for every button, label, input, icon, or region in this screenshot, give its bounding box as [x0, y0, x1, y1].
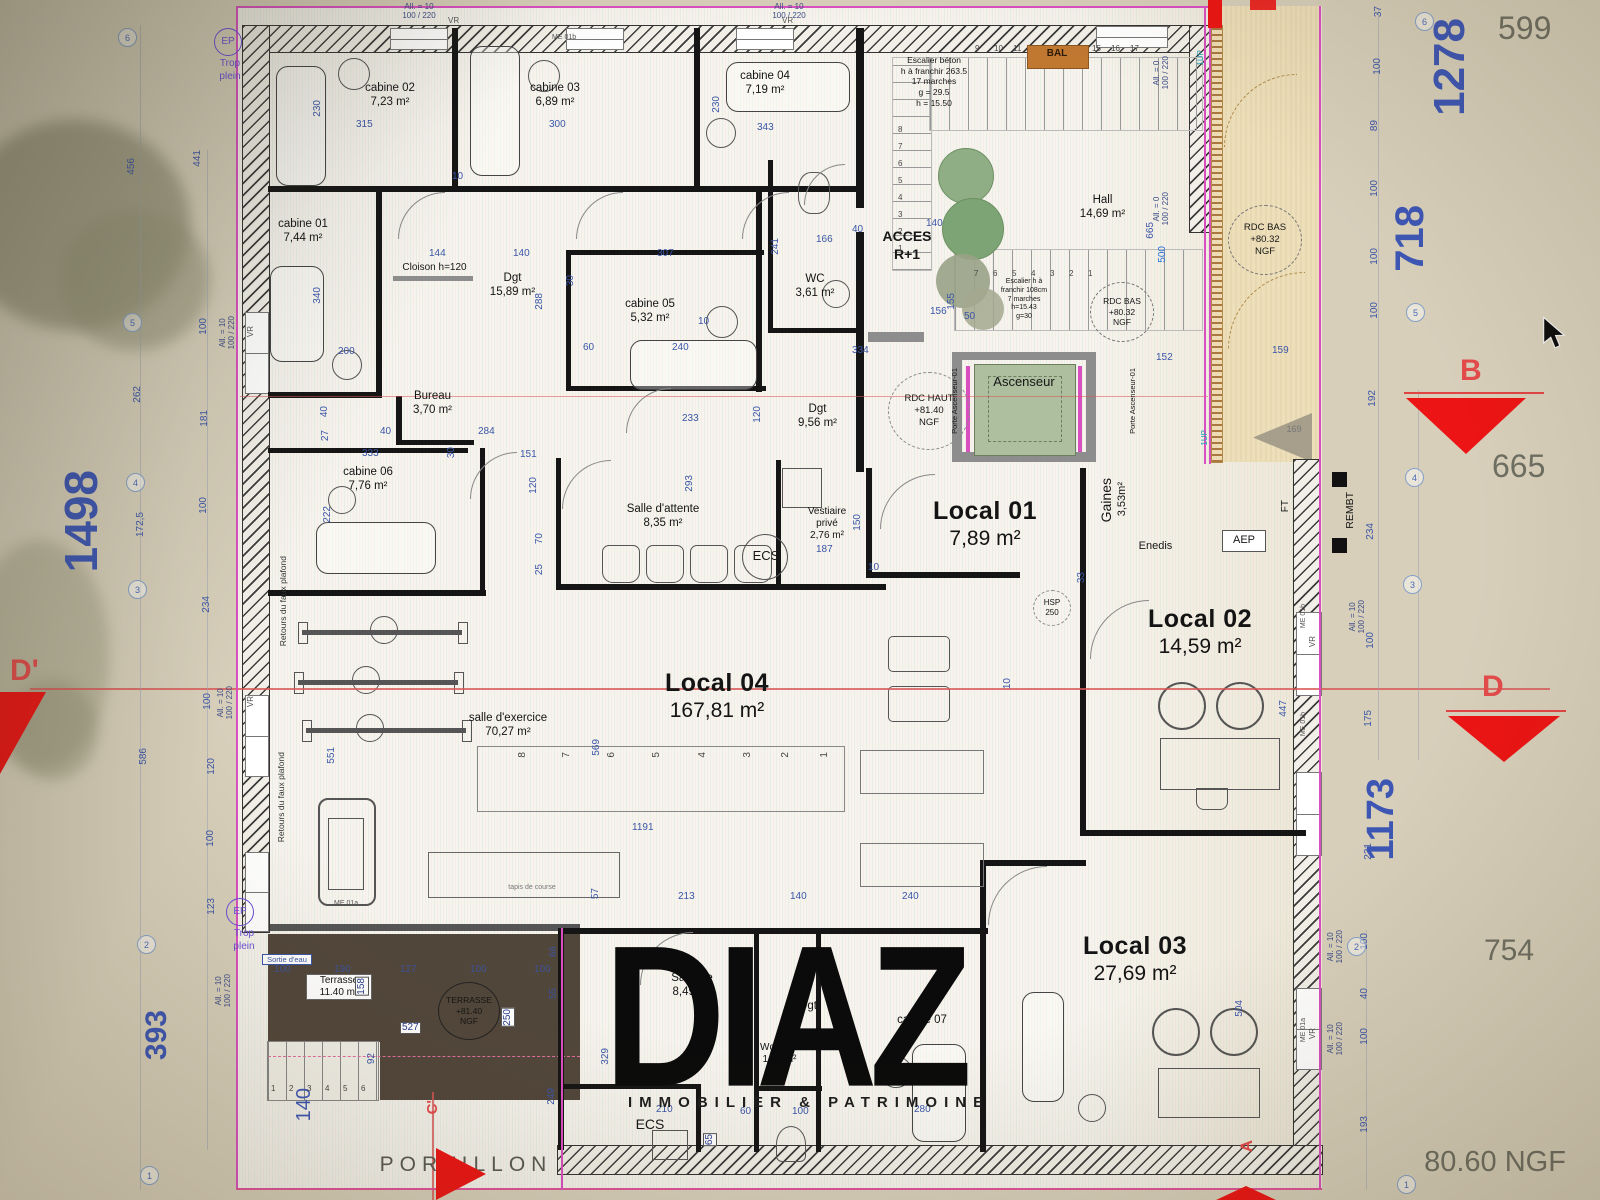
room-name: cabine 05	[600, 298, 700, 312]
step-number: 3	[307, 1085, 311, 1093]
mat-number: 1	[820, 752, 830, 758]
dim-label: 25	[535, 564, 545, 575]
marker-d-line	[1446, 710, 1566, 712]
room-label-cabine02: cabine 027,23 m²	[340, 82, 440, 110]
armchair	[1152, 1008, 1200, 1056]
room-area: 7,23 m²	[340, 96, 440, 110]
vr-label: VR	[1308, 1028, 1317, 1039]
wall	[980, 860, 1086, 866]
stair-number: 3	[898, 211, 902, 219]
wall	[268, 590, 486, 596]
stair-number: 10	[994, 45, 1003, 53]
wall-note: All. = 10 100 / 220	[214, 974, 232, 1007]
big-dim-754: 754	[1484, 936, 1534, 966]
room-area: 14,69 m²	[1055, 208, 1150, 222]
me-label: ME 01b	[1300, 712, 1308, 736]
room-label-dgt2: Dgt9,56 m²	[770, 403, 865, 431]
stair-number: 3	[1050, 270, 1054, 278]
dim-label: 181	[200, 410, 210, 427]
treadmill-belt	[328, 818, 364, 890]
sheet-border	[1209, 6, 1211, 464]
stool	[706, 118, 736, 148]
stair-note-small: Escalier h à franchir 108cm 7 marches h=…	[980, 278, 1068, 322]
dim-label: 155	[947, 293, 957, 310]
ecs-unit	[652, 1130, 688, 1160]
section-line	[240, 396, 1208, 397]
dim-label: 120	[207, 758, 217, 775]
dim-label: 340	[313, 287, 323, 304]
dim-label: 156	[930, 307, 947, 317]
cloison-note: Cloison h=120	[392, 262, 477, 275]
wall	[868, 332, 924, 342]
wall-note: All. = 10 100 / 220	[388, 2, 450, 20]
wall-left	[243, 26, 269, 932]
dim-label: 527	[400, 1022, 421, 1034]
massage-table	[470, 46, 520, 176]
dim-label: 158	[355, 977, 369, 996]
dim-label: 40	[380, 427, 391, 437]
marker-b: B	[1460, 352, 1482, 390]
waiting-chair	[646, 545, 684, 583]
room-label-gaines: Gaines	[1098, 478, 1116, 522]
stair-number: 7	[898, 143, 902, 151]
big-dim-599: 599	[1498, 12, 1551, 44]
marker-d-prime: D'	[10, 652, 39, 690]
me-label: ME 01b	[552, 34, 576, 42]
step-number: 5	[343, 1085, 347, 1093]
dim-label: 240	[902, 892, 919, 902]
gym-plate	[302, 720, 312, 742]
dim-label: 27	[321, 430, 331, 441]
dim-label: 300	[549, 120, 566, 130]
dim-label: 190	[334, 965, 351, 975]
elevator-frame	[952, 352, 1096, 360]
vr-label: VR	[246, 326, 255, 337]
stool	[706, 306, 738, 338]
dim-label: 92	[367, 1053, 377, 1064]
gym-plate	[458, 622, 468, 644]
dim-label: 100	[1370, 248, 1380, 265]
dim-label: 187	[816, 545, 833, 555]
faux-plafond-note: Retours du faux plafond	[278, 556, 289, 646]
dim-label: 30	[566, 275, 576, 286]
big-dim-1498: 1498	[58, 470, 104, 572]
dim-label: 249	[547, 1088, 557, 1105]
room-name: Local 03	[1050, 931, 1220, 961]
dim-label: 40	[852, 225, 863, 235]
dim-label: 127	[400, 965, 417, 975]
room-name: cabine 03	[505, 82, 605, 96]
dim-label: 1191	[632, 823, 654, 833]
wall	[1080, 576, 1086, 834]
room-label-local01: Local 017,89 m²	[900, 496, 1070, 551]
room-area: 15,89 m²	[465, 286, 560, 300]
room-name: cabine 01	[253, 218, 353, 232]
room-area: 9,56 m²	[770, 417, 865, 431]
dim-label: 166	[816, 235, 833, 245]
room-name: Local 04	[612, 668, 822, 698]
room-area: 5,32 m²	[600, 312, 700, 326]
plant	[938, 148, 994, 204]
dim-label: 241	[771, 238, 781, 255]
section-mark	[1250, 0, 1276, 10]
dim-label: 57	[591, 888, 601, 899]
big-dim-665: 665	[1492, 450, 1545, 482]
dim-label: 60	[583, 343, 594, 353]
dim-label: 55	[549, 988, 559, 999]
stair-note-main: Escalier béton h à franchir 263.5 17 mar…	[878, 55, 990, 108]
massage-table	[630, 340, 757, 390]
wall-note: All. = 10 100 / 220	[1326, 1022, 1344, 1055]
dim-label: 343	[757, 123, 774, 133]
room-area: 7,44 m²	[253, 232, 353, 246]
dim-label: 504	[1235, 1000, 1245, 1017]
vr-label: VR	[782, 16, 793, 25]
dim-label: 200	[338, 347, 355, 357]
corridor-wall	[1212, 26, 1222, 462]
waiting-chair	[690, 545, 728, 583]
room-area: 7,89 m²	[900, 526, 1070, 551]
shower	[782, 468, 822, 508]
floor-plan-photo: cabine 027,23 m² cabine 036,89 m² cabine…	[0, 0, 1600, 1200]
mat-number: 2	[781, 752, 791, 758]
plant	[942, 198, 1004, 260]
dim-label: 50	[964, 312, 975, 322]
gym-plate	[298, 622, 308, 644]
dim-label: 40	[1360, 988, 1370, 999]
mat-number: 4	[698, 752, 708, 758]
rembt-square	[1332, 472, 1347, 487]
stair-number: 17	[1130, 45, 1139, 53]
wall-note: All. = 10 100 / 220	[216, 686, 234, 719]
dim-label: 120	[753, 406, 763, 423]
gym-bench	[860, 843, 984, 887]
room-label-exercice: salle d'exercice70,27 m²	[448, 712, 568, 740]
dim-label: 213	[678, 892, 695, 902]
vr-label: VR	[246, 696, 255, 707]
stool	[1078, 1094, 1106, 1122]
step-number: 1	[271, 1085, 275, 1093]
dim-label: 100	[534, 965, 551, 975]
wall-note: All. = 10 100 / 220	[1348, 600, 1366, 633]
room-name: cabine 06	[318, 466, 418, 480]
dim-label: 586	[139, 748, 149, 765]
dim-label: 159	[1272, 346, 1289, 356]
room-label-local03: Local 0327,69 m²	[1050, 931, 1220, 986]
gym-plate	[454, 672, 464, 694]
dim-label: 262	[133, 386, 143, 403]
dim-label: 665	[1146, 222, 1156, 239]
room-label-cabine03: cabine 036,89 m²	[505, 82, 605, 110]
chain-line	[207, 150, 208, 1150]
dim-label: 284	[478, 427, 495, 437]
dim-label: 100	[199, 318, 209, 335]
room-name: Dgt	[770, 403, 865, 417]
room-area: 3,61 m²	[775, 287, 855, 301]
ngf-80-60: 80.60 NGF	[1400, 1144, 1590, 1180]
marker-d: D	[1482, 668, 1504, 706]
room-label-cabine06: cabine 067,76 m²	[318, 466, 418, 494]
room-area: 7,19 m²	[715, 84, 815, 98]
stair-number: 6	[898, 160, 902, 168]
acces-label: ACCES R+1	[876, 228, 938, 263]
gym-machine	[888, 686, 950, 722]
dim-label: 456	[127, 158, 137, 175]
grid-bubble: 4	[126, 473, 145, 492]
trop-plein-label: Trop plein	[222, 928, 266, 953]
mat-number: 5	[652, 752, 662, 758]
stair-number: 11	[1013, 45, 1021, 53]
dim-label: 70	[535, 533, 545, 544]
dim-label: 150	[853, 514, 863, 531]
marker-b-triangle	[1406, 398, 1526, 454]
stair-number: 9	[975, 45, 979, 53]
stair-number: 2	[898, 228, 902, 236]
mat-number: 6	[607, 752, 617, 758]
stair-number: 8	[898, 126, 902, 134]
room-label-dgt1: Dgt15,89 m²	[465, 272, 560, 300]
room-label-hall: Hall14,69 m²	[1055, 194, 1150, 222]
stair-number: 15	[1092, 45, 1101, 53]
sheet-border	[1204, 6, 1206, 464]
dim-label: 100	[1370, 180, 1380, 197]
stair-up-label: 1UP	[1196, 50, 1205, 66]
room-area: 167,81 m²	[612, 698, 822, 723]
vr-label: VR	[448, 16, 459, 25]
dim-label: 230	[712, 96, 722, 113]
stair-number: 4	[1031, 270, 1035, 278]
dim-label: 10	[698, 317, 709, 327]
dim-label: 100	[1373, 58, 1383, 75]
stair-number: 2	[1069, 270, 1073, 278]
chain-line	[1366, 930, 1367, 1190]
massage-table	[316, 522, 436, 574]
terrasse-ngf-circle: TERRASSE +81.40 NGF	[438, 982, 500, 1040]
wall	[268, 392, 378, 398]
dim-label: 240	[672, 343, 689, 353]
dim-label: 120	[529, 477, 539, 494]
room-name: cabine 02	[340, 82, 440, 96]
dim-label: 500	[1158, 246, 1168, 263]
sofa	[1022, 992, 1064, 1102]
stair-number: 1	[898, 245, 902, 253]
dim-label: 140	[513, 249, 530, 259]
grid-bubble: 2	[1347, 937, 1366, 956]
trop-plein-label: Trop plein	[208, 58, 252, 83]
stair-number: 6	[993, 270, 997, 278]
diaz-tagline: IMMOBILIER & PATRIMOINE	[628, 1094, 990, 1111]
wall	[376, 192, 382, 398]
desk	[1160, 738, 1280, 790]
elevator-frame	[1086, 352, 1096, 462]
wall	[768, 328, 864, 333]
stair-up-label: 1UP	[1200, 430, 1209, 446]
grid-bubble: 6	[1415, 12, 1434, 31]
wall	[1080, 830, 1306, 836]
dim-label: 315	[356, 120, 373, 130]
dim-label: 140	[926, 219, 943, 229]
dim-label: 10	[1003, 678, 1013, 689]
mat-number: 7	[562, 752, 572, 758]
grid-bubble: 5	[1406, 303, 1425, 322]
room-area: 3,70 m²	[390, 404, 475, 418]
room-label-cabine01: cabine 017,44 m²	[253, 218, 353, 246]
waiting-chair	[602, 545, 640, 583]
wall	[556, 584, 886, 590]
room-area: 8,35 m²	[598, 517, 728, 531]
dim-label: 30	[447, 447, 457, 458]
mouse-cursor	[1540, 316, 1570, 350]
room-name: salle d'exercice	[448, 712, 568, 726]
dim-label: 140	[790, 892, 807, 902]
dim-label: 40	[320, 406, 330, 417]
room-name: Hall	[1055, 194, 1150, 208]
big-dim-140: 140	[294, 1088, 314, 1121]
dim-label: 288	[535, 293, 545, 310]
stair-number: 5	[1012, 270, 1016, 278]
room-label-cabine05: cabine 055,32 m²	[600, 298, 700, 326]
sheet-border	[1319, 6, 1321, 1190]
room-label-wc: WC3,61 m²	[775, 273, 855, 301]
dim-label: 144	[429, 249, 446, 259]
dim-label: 193	[1360, 1116, 1370, 1133]
ft-label: FT	[1280, 500, 1293, 512]
dim-label: 230	[313, 100, 323, 117]
room-area-gaines: 3,53m²	[1116, 482, 1130, 516]
mat-number: 8	[518, 752, 528, 758]
sheet-border	[236, 6, 1210, 8]
mat-number: 3	[743, 752, 753, 758]
room-area: 2,76 m²	[787, 530, 867, 542]
massage-table	[270, 266, 324, 362]
dim-label: 100	[206, 830, 216, 847]
room-name: Local 01	[900, 496, 1070, 526]
dim-label: 441	[193, 150, 203, 167]
grid-bubble: 3	[1403, 575, 1422, 594]
room-name: Salle d'attente	[598, 503, 728, 517]
dim-label: 33	[1077, 572, 1087, 583]
dim-label: 447	[1279, 700, 1289, 717]
sheet-border	[561, 928, 563, 1190]
stair-number: 16	[1111, 45, 1120, 53]
vr-label: VR	[1308, 636, 1317, 647]
elevator-door	[1078, 366, 1082, 452]
stair-number: 5	[898, 177, 902, 185]
faux-plafond-note: Retours du faux plafond	[276, 752, 287, 842]
room-name: cabine 04	[715, 70, 815, 84]
gym-plate	[294, 672, 304, 694]
wall	[556, 458, 561, 588]
gym-machine	[888, 636, 950, 672]
room-label-cabine04: cabine 047,19 m²	[715, 70, 815, 98]
wall	[856, 28, 864, 208]
wall	[866, 572, 1020, 578]
step-number: 4	[325, 1085, 329, 1093]
room-label-local04: Local 04167,81 m²	[612, 668, 822, 723]
dim-label: 569	[592, 739, 602, 756]
dim-label: 100	[274, 965, 291, 975]
gym-bench	[860, 750, 984, 794]
diaz-watermark: DIAZ	[604, 916, 964, 1117]
marker-c-prime: C'	[424, 1100, 443, 1114]
dim-label: 100	[1370, 302, 1380, 319]
gym-seat	[356, 714, 384, 742]
room-name: WC	[775, 273, 855, 287]
dim-label: 10	[868, 563, 879, 573]
desk-chair	[1196, 788, 1228, 810]
wall-note: All. = 0 100 / 220	[1152, 192, 1170, 225]
grid-bubble: 6	[118, 28, 137, 47]
step-number: 2	[289, 1085, 293, 1093]
grid-bubble: 1	[1397, 1175, 1416, 1194]
window	[390, 28, 448, 50]
dim-label: 175	[1364, 710, 1374, 727]
dim-label: 333	[362, 449, 379, 459]
dim-label: 89	[1370, 120, 1380, 131]
me-label: ME 01a	[334, 900, 358, 908]
dim-label: 100	[1366, 632, 1376, 649]
sheet-border	[236, 6, 238, 1190]
grid-bubble: 1	[140, 1166, 159, 1185]
room-area: 14,59 m²	[1115, 634, 1285, 659]
terrace-top-wall	[268, 924, 580, 931]
dim-label: 234	[1366, 523, 1376, 540]
room-name: Local 02	[1115, 604, 1285, 634]
dim-label: 551	[327, 747, 337, 764]
wall-note: All. = 10 100 / 220	[1326, 930, 1344, 963]
wall	[396, 440, 474, 445]
dim-label: 152	[1156, 353, 1173, 363]
grid-bubble: 5	[123, 313, 142, 332]
grid-bubble: 2	[137, 935, 156, 954]
me-label: ME 01a	[1300, 1018, 1308, 1042]
stair-number: 4	[898, 194, 902, 202]
desk	[1158, 1068, 1260, 1118]
room-name: Bureau	[390, 390, 475, 404]
grid-bubble: 3	[128, 580, 147, 599]
big-dim-1278: 1278	[1428, 18, 1472, 116]
wall	[566, 250, 571, 390]
room-name: Dgt	[465, 272, 560, 286]
big-dim-393: 393	[142, 1010, 172, 1060]
dim-label: 234	[202, 596, 212, 613]
gym-seat	[370, 616, 398, 644]
dim-label: 100	[199, 497, 209, 514]
hsp-circle: HSP 250	[1033, 590, 1071, 626]
ascenseur-label: Ascenseur	[986, 374, 1062, 390]
triangle-169-label: 169	[1280, 424, 1308, 435]
porte-ascenseur-label: Porte Ascenseur-01	[950, 368, 959, 434]
gym-bar	[306, 728, 466, 733]
me-label: ME 01b	[1300, 604, 1308, 628]
room-area: 7,76 m²	[318, 480, 418, 494]
chain-line	[1418, 390, 1419, 760]
wall	[694, 28, 700, 188]
cloison-wall	[393, 276, 473, 281]
room-area: 70,27 m²	[448, 726, 568, 740]
dim-label: 66	[549, 946, 559, 957]
rembt-square	[1332, 538, 1347, 553]
dim-label: 123	[207, 898, 217, 915]
porte-ascenseur-label: Porte Ascenseur-01	[1128, 368, 1137, 434]
bal-label: BAL	[1027, 48, 1087, 61]
dim-label: 172,5	[136, 512, 146, 537]
dim-label: 65	[703, 1133, 717, 1146]
section-mark	[1208, 0, 1222, 28]
rdc-bas-circle: RDC BAS +80.32 NGF	[1228, 205, 1302, 275]
wall	[452, 28, 458, 188]
enedis-label: Enedis	[1128, 540, 1183, 554]
